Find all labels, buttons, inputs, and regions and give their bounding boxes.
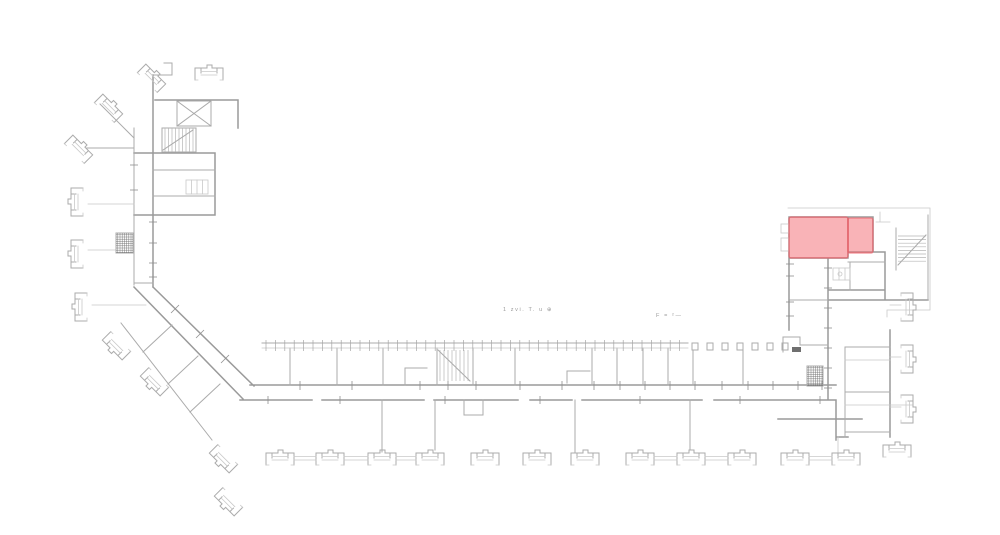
stair-run-line: [438, 350, 470, 381]
floor-plan-svg: 1 zvi. T. u ⊕ F = ²—: [0, 0, 1000, 535]
bay-glazing: [571, 457, 599, 466]
stair-run-line: [163, 130, 193, 150]
bay-outline: [138, 368, 168, 398]
bay-outline: [901, 395, 916, 423]
pillar: [752, 343, 758, 350]
window-bay-icon: [626, 450, 654, 465]
window-bay-icon: [195, 65, 223, 80]
bay-glazing: [75, 188, 84, 216]
wall-niche: [781, 238, 789, 251]
window-bay-icon: [72, 293, 87, 321]
window-bay-icon: [266, 450, 294, 465]
bay-outline: [100, 332, 130, 362]
window-bay-icon: [471, 450, 499, 465]
window-bay-icon: [138, 368, 168, 398]
pillar: [737, 343, 743, 350]
bay-glazing: [105, 332, 131, 358]
pillar: [767, 343, 773, 350]
bay-glazing: [266, 457, 294, 466]
floor-plan-canvas: 1 zvi. T. u ⊕ F = ²—: [0, 0, 1000, 535]
window-bay-icon: [207, 445, 237, 475]
bay-outline: [72, 293, 87, 321]
pillar: [722, 343, 728, 350]
bay-glazing: [94, 97, 120, 123]
bay-glazing: [217, 488, 243, 514]
bay-outline: [626, 450, 654, 465]
window-bay-icon: [100, 332, 130, 362]
bay-glazing: [677, 457, 705, 466]
bay-outline: [728, 450, 756, 465]
window-bay-icon: [883, 442, 911, 457]
highlighted-room[interactable]: [848, 218, 873, 253]
bay-outline: [266, 450, 294, 465]
solid-wall-mark: [792, 347, 801, 352]
window-bay-icon: [832, 450, 860, 465]
window-bay-icon: [212, 488, 242, 518]
pillar: [707, 343, 713, 350]
bay-glazing: [901, 293, 910, 321]
bay-glazing: [728, 457, 756, 466]
window-bay-icon: [728, 450, 756, 465]
bay-glazing: [195, 72, 223, 81]
wc-fixtures: [186, 180, 850, 280]
walls-layer: [87, 63, 930, 455]
window-bay-icon: [416, 450, 444, 465]
bay-glazing: [143, 368, 169, 394]
pillar: [692, 343, 698, 350]
bay-glazing: [626, 457, 654, 466]
window-bay-icon: [316, 450, 344, 465]
bay-outline: [68, 240, 83, 268]
fixture-dividers: [192, 180, 203, 194]
bay-glazing: [471, 457, 499, 466]
bay-outline: [832, 450, 860, 465]
elevator-shaft-icon: [177, 101, 211, 126]
bay-outline: [901, 345, 916, 373]
bay-glazing: [416, 457, 444, 466]
bay-outline: [416, 450, 444, 465]
bay-outline: [316, 450, 344, 465]
wall-tick: [221, 355, 229, 363]
bay-glazing: [316, 457, 344, 466]
bay-glazing: [75, 240, 84, 268]
bay-glazing: [832, 457, 860, 466]
bay-glazing: [137, 67, 163, 93]
window-bay-icon: [901, 293, 916, 321]
highlighted-room[interactable]: [789, 217, 848, 258]
bay-glazing: [368, 457, 396, 466]
bay-outline: [471, 450, 499, 465]
bay-outline: [883, 442, 911, 457]
bay-outline: [94, 92, 124, 122]
window-bay-icon: [523, 450, 551, 465]
bay-glazing: [781, 457, 809, 466]
fixture-row: [833, 268, 850, 280]
annotation-text: F = ²—: [656, 313, 683, 319]
wall-niche: [781, 224, 789, 233]
bay-glazing: [901, 345, 910, 373]
bay-outline: [523, 450, 551, 465]
window-bay-icon: [94, 92, 124, 122]
window-bay-icon: [677, 450, 705, 465]
bay-outline: [677, 450, 705, 465]
bay-outline: [207, 445, 237, 475]
window-bay-icon: [68, 188, 83, 216]
bay-glazing: [901, 395, 910, 423]
window-bay-icon: [68, 240, 83, 268]
bay-outline: [195, 65, 223, 80]
bay-outline: [781, 450, 809, 465]
bay-glazing: [523, 457, 551, 466]
bay-glazing: [883, 449, 911, 458]
window-bay-icon: [901, 345, 916, 373]
annotation-text: 1 zvi. T. u ⊕: [503, 307, 553, 313]
window-bay-icon: [901, 395, 916, 423]
bay-outline: [68, 188, 83, 216]
bay-glazing: [64, 138, 90, 164]
bay-outline: [901, 293, 916, 321]
bay-outline: [212, 488, 242, 518]
generated-details-layer: [64, 62, 926, 518]
highlight-overlay: [789, 217, 873, 258]
bay-glazing: [79, 293, 88, 321]
annotations-layer: 1 zvi. T. u ⊕ F = ²—: [503, 307, 683, 319]
elevator-x: [177, 101, 211, 126]
window-bay-icon: [781, 450, 809, 465]
bay-glazing: [212, 445, 238, 471]
